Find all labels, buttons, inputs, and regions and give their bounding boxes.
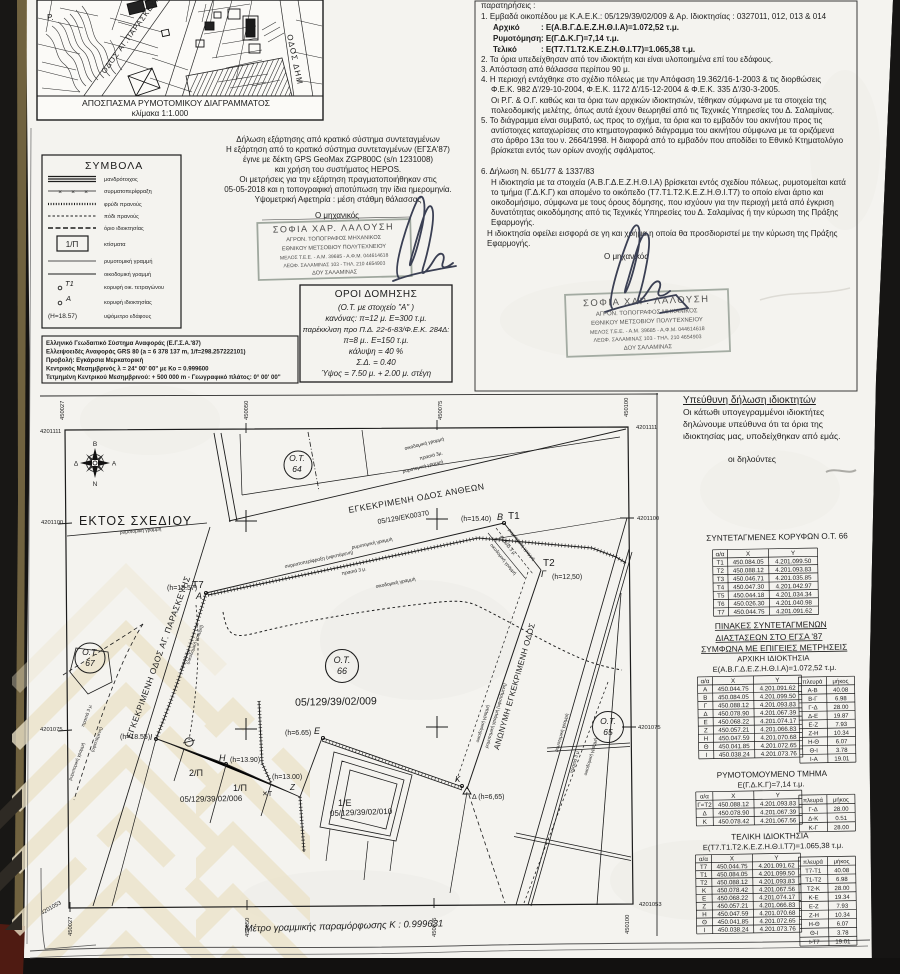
- svg-text:Τ1-Τ2: Τ1-Τ2: [805, 877, 822, 883]
- svg-text:(h=13.00): (h=13.00): [272, 774, 302, 781]
- svg-text:Ρυμοτόμηση: Ε(Γ.Δ.Κ.Γ)=7,14 τ.: Ρυμοτόμηση: Ε(Γ.Δ.Κ.Γ)=7,14 τ.μ.: [493, 34, 619, 43]
- svg-text:7.93: 7.93: [836, 904, 848, 910]
- svg-text:Τετμημένη Κεντρικού Μεσημβρινο: Τετμημένη Κεντρικού Μεσημβρινού: + 500 0…: [46, 374, 281, 381]
- svg-text:Α: Α: [195, 591, 202, 601]
- svg-text:Θ: Θ: [704, 744, 709, 751]
- svg-text:Υψομετρική Αφετηρία : μέση στά: Υψομετρική Αφετηρία : μέση στάθμη θάλασσ…: [255, 195, 422, 204]
- svg-text:4.201.093.83: 4.201.093.83: [760, 701, 797, 709]
- svg-text:έγινε με δέκτη GPS GeoMax ZGP8: έγινε με δέκτη GPS GeoMax ZGP800C (s/n 1…: [243, 155, 433, 164]
- svg-text:κτίσματα: κτίσματα: [104, 242, 126, 248]
- svg-text:Σ.Δ. = 0.40: Σ.Δ. = 0.40: [355, 358, 396, 367]
- svg-text:450.047.59: 450.047.59: [718, 735, 750, 743]
- svg-text:Β-Γ: Β-Γ: [808, 697, 818, 703]
- svg-text:450.068.22: 450.068.22: [717, 895, 749, 903]
- svg-text:4201100: 4201100: [41, 520, 63, 526]
- svg-text:Εφαρμογής.: Εφαρμογής.: [487, 239, 530, 248]
- svg-text:(Ο.Τ. με στοιχείο "Α" ): (Ο.Τ. με στοιχείο "Α" ): [338, 303, 414, 312]
- svg-text:Τ1: Τ1: [65, 279, 74, 288]
- svg-text:πλευρά: πλευρά: [803, 859, 824, 866]
- svg-text:Τ5: Τ5: [717, 593, 725, 600]
- svg-text:Οι κάτωθι υπογεγραμμένοι ιδιοκ: Οι κάτωθι υπογεγραμμένοι ιδιοκτήτες: [683, 407, 824, 417]
- svg-text:450100: 450100: [625, 915, 631, 934]
- svg-text:28.00: 28.00: [834, 807, 850, 813]
- svg-text:4.201.093.83: 4.201.093.83: [760, 800, 797, 808]
- svg-text:4201111: 4201111: [636, 425, 657, 431]
- svg-text:Κ: Κ: [455, 775, 461, 784]
- svg-text:Τ7: Τ7: [700, 864, 708, 871]
- svg-text:450.088.12: 450.088.12: [718, 801, 750, 809]
- svg-text:X: X: [746, 551, 750, 558]
- svg-text:450.041.85: 450.041.85: [718, 918, 750, 926]
- svg-text:Ε-Ζ: Ε-Ζ: [808, 723, 818, 729]
- svg-text:Η: Η: [704, 736, 709, 743]
- svg-text:αντίστοιχες καταχωρίσεις στο κ: αντίστοιχες καταχωρίσεις στο κτηματογραφ…: [491, 126, 834, 135]
- svg-text:Ν: Ν: [93, 481, 98, 488]
- svg-text:Y: Y: [791, 550, 795, 557]
- svg-text:19.01: 19.01: [835, 939, 851, 945]
- svg-text:πόδι πρανούς: πόδι πρανούς: [104, 213, 139, 220]
- svg-text:(h=13.90): (h=13.90): [230, 757, 260, 764]
- svg-text:Ι-Α: Ι-Α: [810, 757, 818, 763]
- svg-text:✕: ✕: [58, 190, 62, 196]
- svg-text:Ζ: Ζ: [702, 903, 706, 910]
- svg-text:450050: 450050: [244, 401, 250, 420]
- svg-text:οι δηλούντες: οι δηλούντες: [728, 454, 776, 464]
- svg-text:Ε-Ζ: Ε-Ζ: [809, 904, 819, 910]
- svg-text:19.34: 19.34: [835, 895, 851, 901]
- svg-text:Κεντρικός Μεσημβρινός λ = 24°: Κεντρικός Μεσημβρινός λ = 24° 00' 00" με…: [46, 366, 209, 373]
- svg-text:28.00: 28.00: [834, 825, 850, 831]
- svg-text:6.07: 6.07: [837, 921, 849, 927]
- svg-text:Η: Η: [702, 911, 707, 918]
- svg-text:4201100: 4201100: [637, 516, 659, 522]
- svg-text:κλίμακα 1:1.000: κλίμακα 1:1.000: [132, 109, 189, 118]
- svg-text:ΑΡΧΙΚΗ ΙΔΙΟΚΤΗΣΙΑ: ΑΡΧΙΚΗ ΙΔΙΟΚΤΗΣΙΑ: [737, 653, 810, 663]
- svg-text:ΤΕΛΙΚΗ ΙΔΙΟΚΤΗΣΙΑ: ΤΕΛΙΚΗ ΙΔΙΟΚΤΗΣΙΑ: [731, 831, 809, 841]
- svg-text:Ο.Τ.: Ο.Τ.: [82, 647, 98, 657]
- svg-text:Τ7: Τ7: [192, 580, 204, 591]
- svg-text:υψόμετρο εδάφους: υψόμετρο εδάφους: [104, 313, 152, 320]
- svg-text:ΟΡΟΙ ΔΟΜΗΣΗΣ: ΟΡΟΙ ΔΟΜΗΣΗΣ: [335, 289, 418, 300]
- svg-text:Ο.Τ.: Ο.Τ.: [600, 716, 616, 726]
- svg-text:το τμήμα (Γ.Δ.Κ.Γ) και απομένο: το τμήμα (Γ.Δ.Κ.Γ) και απομένο το οικόπε…: [491, 188, 824, 197]
- svg-text:οικοδομήσιμο, σύμφωνα με τους: οικοδομήσιμο, σύμφωνα με τους όρους δόμη…: [491, 198, 834, 207]
- svg-text:4.201.099.50: 4.201.099.50: [775, 558, 812, 566]
- svg-text:Η-Θ: Η-Θ: [809, 922, 820, 928]
- svg-text:φρύδι πρανούς: φρύδι πρανούς: [104, 202, 142, 208]
- svg-text:450.088.12: 450.088.12: [718, 702, 750, 710]
- svg-text:βρίσκεται εντός των ορίων ανοχ: βρίσκεται εντός των ορίων ανοχής σφάλματ…: [491, 146, 655, 155]
- svg-text:1/Π: 1/Π: [233, 783, 247, 793]
- svg-text:450.084.05: 450.084.05: [733, 559, 765, 567]
- svg-text:450.044.75: 450.044.75: [718, 686, 750, 694]
- svg-text:ρυμοτομική γραμμή: ρυμοτομική γραμμή: [104, 258, 152, 265]
- svg-text:4.201.040.98: 4.201.040.98: [776, 599, 813, 607]
- svg-text:Ε: Ε: [702, 895, 706, 902]
- svg-text:3.78: 3.78: [837, 930, 849, 936]
- svg-text:Β: Β: [93, 441, 97, 448]
- svg-text:ΔΟΥ ΣΑΛΑΜΙΝΑΣ: ΔΟΥ ΣΑΛΑΜΙΝΑΣ: [312, 269, 358, 276]
- svg-text:Η ιδιοκτησία οφείλει εισφορά σ: Η ιδιοκτησία οφείλει εισφορά σε γη και χ…: [487, 229, 838, 238]
- svg-text:5. Το διάγραμμα είναι συμβατό,: 5. Το διάγραμμα είναι συμβατό, ως προς τ…: [481, 116, 822, 125]
- svg-text:450.088.12: 450.088.12: [717, 879, 749, 887]
- svg-text:4.201.093.83: 4.201.093.83: [759, 878, 796, 886]
- svg-text:19.87: 19.87: [834, 713, 850, 719]
- svg-text:4.201.091.62: 4.201.091.62: [758, 862, 795, 870]
- svg-text:19.01: 19.01: [834, 756, 850, 762]
- svg-text:Y: Y: [774, 855, 778, 862]
- svg-text:Ε: Ε: [704, 719, 708, 726]
- svg-text:450.078.42: 450.078.42: [718, 818, 750, 826]
- svg-text:7.93: 7.93: [835, 722, 847, 728]
- svg-text:1/Π: 1/Π: [66, 240, 79, 249]
- svg-text:4.201.073.76: 4.201.073.76: [760, 925, 797, 933]
- svg-text:10.34: 10.34: [834, 731, 850, 737]
- svg-text:πολεοδομικής μελέτης, όπως αυτ: πολεοδομικής μελέτης, όπως αυτά έχουν θε…: [491, 106, 834, 115]
- svg-text:Δ: Δ: [703, 711, 707, 718]
- svg-text:(h=6.65): (h=6.65): [285, 730, 311, 737]
- svg-text:(h=15.40): (h=15.40): [461, 516, 491, 523]
- svg-text:α/α: α/α: [716, 551, 725, 558]
- svg-text:Η-Θ: Η-Θ: [808, 740, 819, 746]
- svg-text:4.201.074.17: 4.201.074.17: [759, 894, 796, 902]
- svg-text:Α: Α: [65, 294, 71, 303]
- svg-text:450.047.30: 450.047.30: [733, 584, 765, 592]
- svg-text:Τ2-Κ: Τ2-Κ: [807, 886, 820, 892]
- svg-text:Ζ-Η: Ζ-Η: [809, 913, 819, 919]
- svg-text:4.201.034.34: 4.201.034.34: [776, 591, 813, 599]
- svg-text:450.041.85: 450.041.85: [719, 743, 751, 751]
- svg-text:4.201.091.62: 4.201.091.62: [776, 608, 813, 616]
- svg-text:4.201.066.83: 4.201.066.83: [759, 902, 796, 910]
- svg-text:Ο.Τ.: Ο.Τ.: [334, 655, 351, 665]
- svg-text:παρέκκλιση προ Π.Δ. 22-6-83/Φ.: παρέκκλιση προ Π.Δ. 22-6-83/Φ.Ε.Κ. 284Δ:: [303, 325, 450, 334]
- svg-text:40.08: 40.08: [833, 688, 849, 694]
- svg-text:6. Δήλωση Ν. 651/77 & 1337/83: 6. Δήλωση Ν. 651/77 & 1337/83: [481, 167, 595, 176]
- svg-text:Α-Β: Α-Β: [808, 688, 818, 694]
- svg-text:κανόνας: π=12 μ. Ε=300 τ.μ.: κανόνας: π=12 μ. Ε=300 τ.μ.: [325, 314, 426, 323]
- svg-text:Ο μηχανικός: Ο μηχανικός: [604, 252, 648, 261]
- svg-text:450027: 450027: [60, 401, 66, 420]
- svg-text:4. Η περιοχή εντάχθηκε στο σχέ: 4. Η περιοχή εντάχθηκε στο σχέδιο πόλεως…: [481, 75, 821, 84]
- svg-text:ΠΙΝΑΚΕΣ ΣΥΝΤΕΤΑΓΜΕΝΩΝ: ΠΙΝΑΚΕΣ ΣΥΝΤΕΤΑΓΜΕΝΩΝ: [715, 619, 827, 631]
- svg-text:05-05-2018 και η τοπογραφική α: 05-05-2018 και η τοπογραφική αποτύπωση τ…: [224, 185, 452, 194]
- svg-text:Γ-Δ: Γ-Δ: [808, 807, 817, 813]
- svg-text:κορυφή ιδιοκτησίας: κορυφή ιδιοκτησίας: [104, 299, 152, 306]
- svg-text:Y: Y: [775, 677, 779, 684]
- svg-text:Θ: Θ: [702, 919, 707, 926]
- svg-text:40.08: 40.08: [834, 868, 850, 874]
- svg-text:Τ4: Τ4: [717, 584, 725, 591]
- svg-text:παρατηρήσεις :: παρατηρήσεις :: [481, 1, 535, 10]
- svg-text:4.201.099.50: 4.201.099.50: [760, 693, 797, 701]
- svg-text:450.046.71: 450.046.71: [733, 575, 765, 583]
- svg-text:Y: Y: [776, 792, 780, 799]
- svg-text:κορυφή οικ. τετραγώνου: κορυφή οικ. τετραγώνου: [104, 284, 164, 291]
- svg-text:4.201.072.65: 4.201.072.65: [761, 742, 798, 750]
- svg-text:ΣΥΜΒΟΛΑ: ΣΥΜΒΟΛΑ: [85, 160, 143, 172]
- svg-text:2/Π: 2/Π: [189, 768, 203, 778]
- svg-text:Η: Η: [219, 753, 226, 763]
- svg-text:1/Ε: 1/Ε: [338, 798, 352, 808]
- svg-text:Τ2: Τ2: [717, 568, 725, 575]
- svg-text:450.026.30: 450.026.30: [733, 600, 765, 608]
- svg-text:1. Εμβαδά οικοπέδου με Κ.Α.Ε.Κ: 1. Εμβαδά οικοπέδου με Κ.Α.Ε.Κ.: 05/129/…: [481, 12, 827, 21]
- svg-text:ΔΙΑΣΤΑΣΕΩΝ ΣΤΟ ΕΓΣΑ '87: ΔΙΑΣΤΑΣΕΩΝ ΣΤΟ ΕΓΣΑ '87: [715, 631, 822, 643]
- svg-text:(Η=18.57): (Η=18.57): [48, 313, 77, 320]
- svg-text:Β: Β: [497, 512, 503, 522]
- svg-text:Εφαρμογής.: Εφαρμογής.: [491, 218, 534, 227]
- svg-text:Δ (h=6,65): Δ (h=6,65): [472, 794, 505, 801]
- svg-text:Ρ.: Ρ.: [47, 13, 54, 22]
- svg-text:64: 64: [292, 464, 302, 474]
- svg-text:δηλώνουμε υπεύθυνα ότι τα όρια: δηλώνουμε υπεύθυνα ότι τα όρια της: [683, 419, 823, 429]
- svg-text:05/129/39/02/009: 05/129/39/02/009: [295, 695, 377, 708]
- svg-text:450.047.59: 450.047.59: [717, 911, 749, 919]
- svg-text:Ε: Ε: [314, 726, 321, 736]
- svg-text:Δ: Δ: [703, 810, 707, 817]
- svg-text:(h=12,50): (h=12,50): [552, 574, 582, 581]
- svg-text:28.00: 28.00: [833, 705, 849, 711]
- svg-text:10.34: 10.34: [835, 913, 851, 919]
- svg-text:Β: Β: [703, 695, 707, 702]
- svg-text:4.201.091.62: 4.201.091.62: [760, 685, 797, 693]
- svg-text:28.00: 28.00: [834, 886, 850, 892]
- svg-text:πλευρά: πλευρά: [802, 678, 823, 685]
- svg-text:Τ7: Τ7: [717, 609, 725, 616]
- svg-text:Κ-Γ: Κ-Γ: [809, 826, 819, 832]
- svg-text:Ι-Τ7: Ι-Τ7: [809, 940, 820, 946]
- svg-text:Ο.Τ.: Ο.Τ.: [289, 453, 305, 463]
- svg-text:450.057.21: 450.057.21: [717, 903, 749, 911]
- svg-text:✕: ✕: [84, 190, 88, 196]
- svg-text:μανδρότοιχος: μανδρότοιχος: [104, 176, 138, 183]
- svg-text:4.201.093.83: 4.201.093.83: [775, 566, 812, 574]
- svg-text:Ελλειψοειδές Αναφοράς GRS 80 (: Ελλειψοειδές Αναφοράς GRS 80 (a = 6 378 …: [46, 349, 246, 356]
- svg-text:οικοδομική γραμμή: οικοδομική γραμμή: [104, 271, 151, 278]
- svg-text:2. Τα όρια υπεδείχθησαν από το: 2. Τα όρια υπεδείχθησαν από τον ιδιοκτήτ…: [481, 55, 773, 64]
- svg-text:ΑΠΟΣΠΑΣΜΑ ΡΥΜΟΤΟΜΙΚΟΥ ΔΙΑΓΡΑΜΜ: ΑΠΟΣΠΑΣΜΑ ΡΥΜΟΤΟΜΙΚΟΥ ΔΙΑΓΡΑΜΜΑΤΟΣ: [82, 98, 270, 108]
- svg-text:450.044.18: 450.044.18: [733, 592, 765, 600]
- svg-text:450.078.90: 450.078.90: [718, 710, 750, 718]
- svg-text:Φ.Ε.Κ. 982 Δ'/29-10-2004, Φ.Ε.: Φ.Ε.Κ. 982 Δ'/29-10-2004, Φ.Ε.Κ. 1172 Δ'…: [491, 85, 780, 94]
- svg-text:450.084.05: 450.084.05: [717, 871, 749, 879]
- svg-text:450.044.75: 450.044.75: [734, 609, 766, 617]
- svg-text:Ε(Γ.Δ.Κ.Γ)=7,14 τ.μ.: Ε(Γ.Δ.Κ.Γ)=7,14 τ.μ.: [737, 779, 804, 789]
- svg-text:α/α: α/α: [700, 793, 709, 800]
- svg-text:450075: 450075: [438, 401, 444, 420]
- svg-text:X: X: [730, 855, 734, 862]
- svg-text:450.084.05: 450.084.05: [718, 694, 750, 702]
- svg-text:Οι μετρήσεις για την εξάρτηση: Οι μετρήσεις για την εξάρτηση πραγματοπο…: [239, 175, 437, 184]
- svg-text:Η εξάρτηση από το κρατικό σύστ: Η εξάρτηση από το κρατικό σύστημα συντετ…: [226, 145, 450, 154]
- svg-text:Υπεύθυνη δήλωση ιδιοκτητών: Υπεύθυνη δήλωση ιδιοκτητών: [683, 394, 816, 406]
- svg-text:στο άρθρο 13α του ν. 2664/1998: στο άρθρο 13α του ν. 2664/1998. Η διαφορ…: [491, 136, 844, 145]
- svg-text:X: X: [731, 793, 735, 800]
- svg-text:π=8 μ.. Ε=150 τ.μ.: π=8 μ.. Ε=150 τ.μ.: [343, 336, 408, 345]
- svg-text:4.201.035.85: 4.201.035.85: [775, 574, 812, 582]
- svg-text:4201075: 4201075: [40, 727, 63, 733]
- svg-text:4.201.073.76: 4.201.073.76: [761, 750, 798, 758]
- svg-text:Ζ: Ζ: [704, 727, 708, 734]
- svg-text:ιδιοκτησίας μας, υποδείχθηκαν: ιδιοκτησίας μας, υποδείχθηκαν από εμάς.: [683, 431, 840, 441]
- svg-text:Δ-Κ: Δ-Κ: [808, 816, 818, 822]
- svg-text:και χρήση του συστήματος HEPOS: και χρήση του συστήματος HEPOS.: [275, 165, 401, 174]
- svg-text:450.078.90: 450.078.90: [718, 810, 750, 818]
- svg-text:όριο ιδιοκτησίας: όριο ιδιοκτησίας: [104, 225, 144, 232]
- svg-text:3. Απόσταση από θάλασσα περίπο: 3. Απόσταση από θάλασσα περίπου 90 μ.: [481, 65, 630, 74]
- svg-text:4201111: 4201111: [40, 429, 61, 435]
- svg-text:0.51: 0.51: [835, 816, 847, 822]
- svg-text:α/α: α/α: [701, 678, 710, 685]
- svg-text:α/α: α/α: [699, 856, 708, 863]
- svg-text:4.201.070.68: 4.201.070.68: [760, 734, 797, 742]
- svg-text:(h=18.55): (h=18.55): [120, 734, 150, 741]
- svg-text:✕: ✕: [71, 190, 75, 196]
- svg-text:450.038.24: 450.038.24: [719, 751, 751, 759]
- svg-text:Ύψος = 7.50 μ. + 2.00 μ. στέγη: Ύψος = 7.50 μ. + 2.00 μ. στέγη: [321, 369, 432, 378]
- svg-text:4.201.066.83: 4.201.066.83: [760, 726, 797, 734]
- svg-text:δυνατότητας οικοδόμησης από τι: δυνατότητας οικοδόμησης από τις Τεχνικές…: [491, 208, 838, 217]
- svg-text:Ελληνικό Γεωδαιτικό Σύστημα Αν: Ελληνικό Γεωδαιτικό Σύστημα Αναφοράς (Ε.…: [46, 340, 201, 347]
- svg-text:4.201.072.65: 4.201.072.65: [759, 918, 796, 926]
- svg-text:4.201.067.39: 4.201.067.39: [760, 809, 797, 817]
- svg-text:4.201.070.68: 4.201.070.68: [759, 910, 796, 918]
- svg-text:6.98: 6.98: [836, 877, 848, 883]
- svg-text:450.038.24: 450.038.24: [718, 926, 750, 934]
- svg-text:65: 65: [603, 727, 613, 737]
- svg-text:05/129/39/02/006: 05/129/39/02/006: [180, 794, 243, 804]
- svg-text:450.078.42: 450.078.42: [717, 887, 749, 895]
- svg-text:450027: 450027: [68, 917, 74, 936]
- svg-text:Τ1: Τ1: [700, 872, 708, 879]
- svg-text:Α: Α: [112, 461, 117, 468]
- svg-text:μήκος: μήκος: [833, 796, 849, 803]
- svg-text:4201053: 4201053: [639, 902, 662, 908]
- svg-text:450.068.22: 450.068.22: [718, 718, 750, 726]
- svg-text:4.201.067.39: 4.201.067.39: [760, 709, 797, 717]
- svg-text:Δήλωση εξάρτησης από κρατικό σ: Δήλωση εξάρτησης από κρατικό σύστημα συν…: [236, 135, 440, 144]
- svg-text:Τ2: Τ2: [700, 880, 708, 887]
- svg-text:συρματοπερίφραξη: συρματοπερίφραξη: [104, 189, 152, 195]
- svg-text:450.088.12: 450.088.12: [733, 567, 765, 575]
- svg-text:Τ3: Τ3: [717, 576, 725, 583]
- svg-text:X: X: [731, 678, 735, 685]
- svg-text:Τ1: Τ1: [508, 511, 520, 522]
- svg-text:4.201.042.97: 4.201.042.97: [775, 583, 812, 591]
- svg-text:Η ιδιοκτησία με τα στοιχεία (Α: Η ιδιοκτησία με τα στοιχεία (Α.Β.Γ.Δ.Ε.Ζ…: [491, 178, 846, 187]
- svg-text:Ζ-Η: Ζ-Η: [808, 731, 818, 737]
- svg-text:Τ2: Τ2: [543, 558, 555, 569]
- svg-text:3.78: 3.78: [836, 748, 848, 754]
- svg-text:450100: 450100: [624, 398, 630, 417]
- svg-text:4.201.099.50: 4.201.099.50: [759, 870, 796, 878]
- svg-text:4.201.067.56: 4.201.067.56: [760, 817, 797, 825]
- svg-text:Γ=Τ2: Γ=Τ2: [697, 802, 712, 809]
- svg-text:Θ-Ι: Θ-Ι: [810, 931, 819, 937]
- svg-text:Δ: Δ: [74, 461, 79, 468]
- svg-text:Γ: Γ: [541, 569, 547, 579]
- svg-text:450.057.21: 450.057.21: [718, 727, 750, 735]
- svg-text:μήκος: μήκος: [832, 678, 848, 685]
- svg-text:Δ-Ε: Δ-Ε: [808, 714, 818, 720]
- svg-text:πλευρά: πλευρά: [803, 797, 824, 804]
- svg-text:Κ-Ε: Κ-Ε: [809, 895, 819, 901]
- svg-text:Τ1: Τ1: [717, 559, 725, 566]
- svg-text:Γ-Δ: Γ-Δ: [808, 705, 817, 711]
- svg-text:κάλυψη = 40 %: κάλυψη = 40 %: [349, 347, 403, 356]
- svg-text:6.98: 6.98: [835, 696, 847, 702]
- svg-text:Θ-Ι: Θ-Ι: [810, 748, 819, 754]
- svg-text:μήκος: μήκος: [833, 858, 849, 865]
- svg-text:66: 66: [337, 666, 347, 676]
- svg-text:450.044.75: 450.044.75: [717, 863, 749, 871]
- svg-text:Τ7-Τ1: Τ7-Τ1: [805, 869, 822, 875]
- svg-text:4201075: 4201075: [638, 725, 661, 731]
- svg-text:4.201.074.17: 4.201.074.17: [760, 718, 797, 726]
- svg-text:6.07: 6.07: [836, 739, 848, 745]
- svg-text:Προβολή: Εγκάρσια Μερκατορική: Προβολή: Εγκάρσια Μερκατορική: [46, 357, 143, 364]
- svg-text:Οι Ρ.Γ. & Ο.Γ. καθώς και τα όρ: Οι Ρ.Γ. & Ο.Γ. καθώς και τα όρια των αρχ…: [491, 96, 827, 105]
- svg-text:Τ6: Τ6: [717, 601, 725, 608]
- svg-text:4.201.067.56: 4.201.067.56: [759, 886, 796, 894]
